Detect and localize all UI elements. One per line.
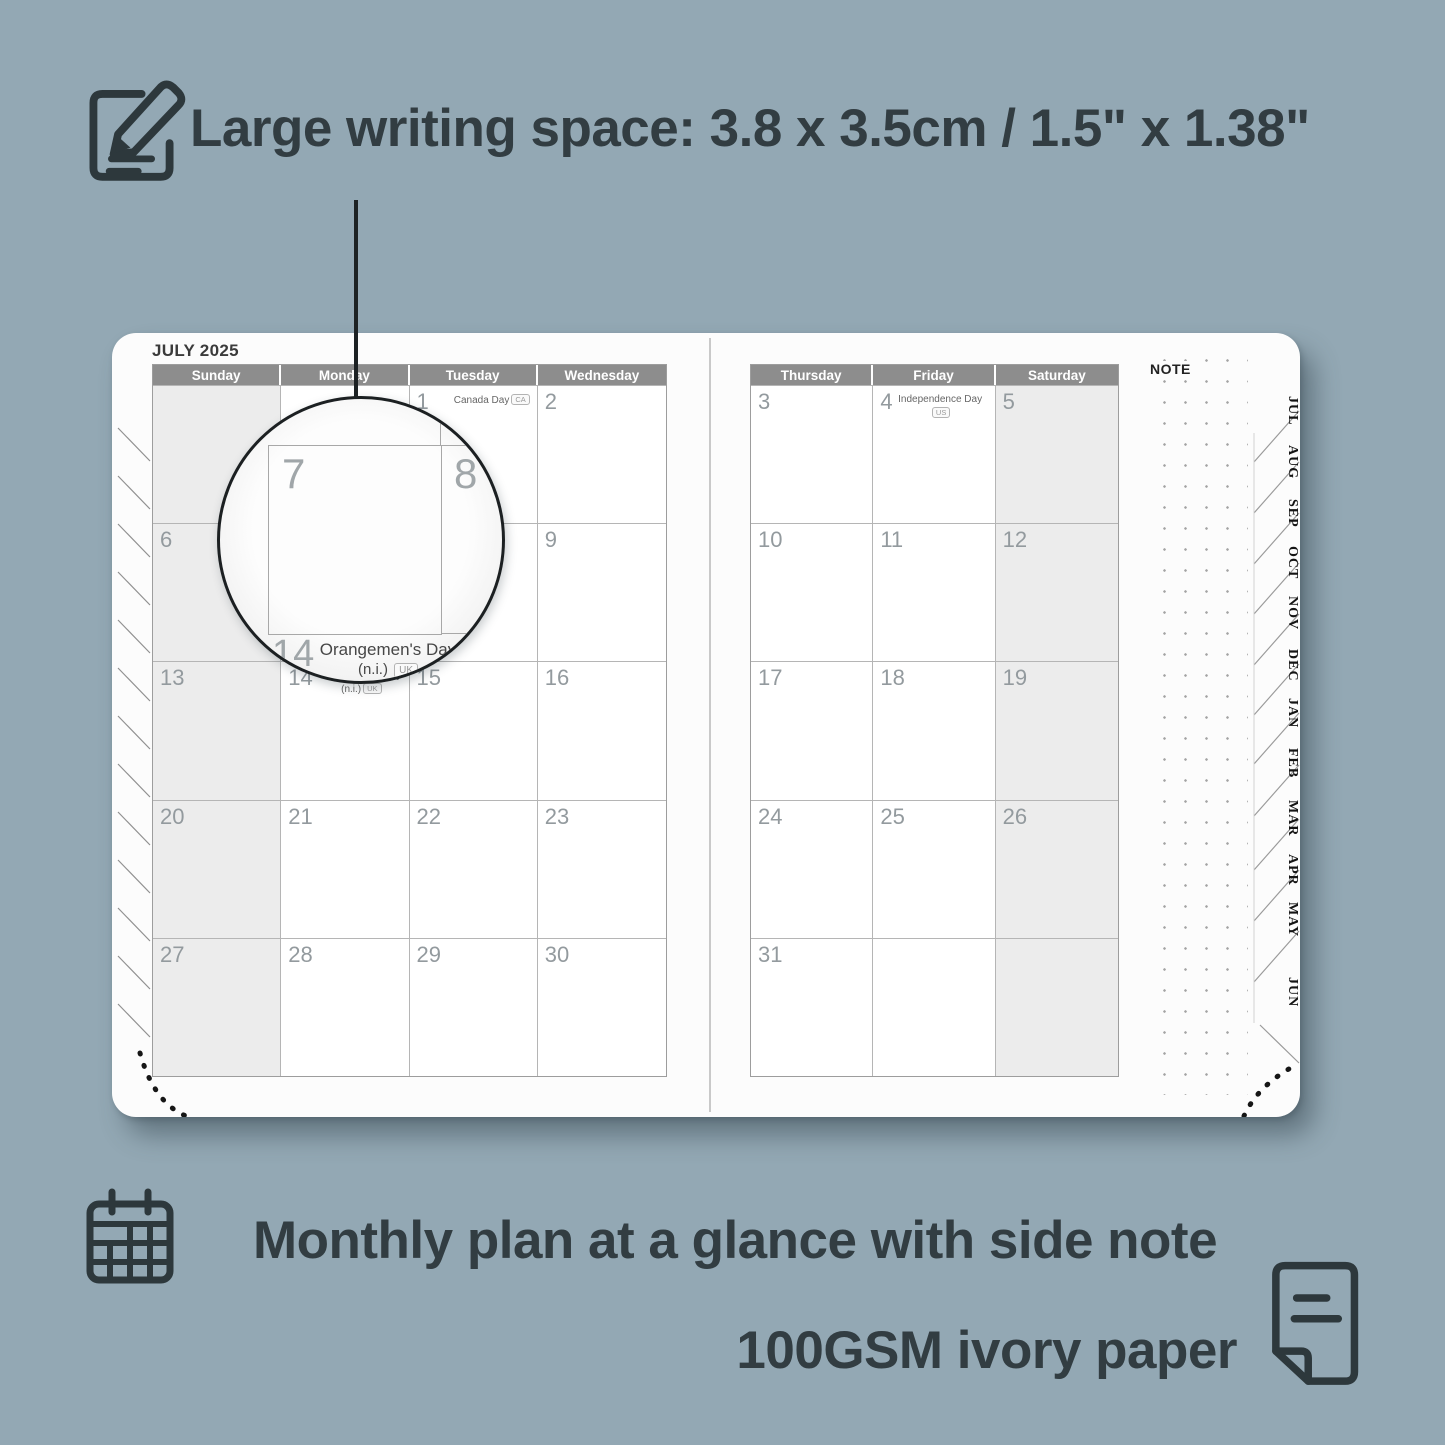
day-cell-holiday: 4 Independence DayUS	[873, 385, 995, 523]
day-cell: 21	[281, 800, 409, 938]
day-cell: 24	[751, 800, 873, 938]
planner-spread: JULY 2025 Sunday Monday Tuesday Wednesda…	[112, 333, 1300, 1117]
day-cell: 28	[281, 938, 409, 1076]
note-edit-icon	[80, 76, 192, 188]
weekday-header: Monday	[281, 365, 409, 385]
day-cell: 22	[410, 800, 538, 938]
weekday-header: Tuesday	[410, 365, 538, 385]
month-tab-may: MAY	[1266, 890, 1300, 950]
calendar-grid-right: Thursday Friday Saturday 3 4 Independenc…	[750, 364, 1119, 1077]
day-cell: 30	[538, 938, 666, 1076]
month-tab-jun: JUN	[1266, 962, 1300, 1022]
day-cell: 9	[538, 523, 666, 661]
day-cell: 2	[538, 385, 666, 523]
day-cell: 19	[996, 661, 1118, 799]
month-tab-feb: FEB	[1266, 733, 1300, 793]
holiday-label: Canada DayCA	[454, 391, 530, 408]
day-cell: 25	[873, 800, 995, 938]
day-cell: 5	[996, 385, 1118, 523]
heading-large-writing-space: Large writing space: 3.8 x 3.5cm / 1.5" …	[190, 98, 1310, 159]
magnified-day-7: 7	[282, 453, 305, 495]
caption-paper: 100GSM ivory paper	[736, 1320, 1237, 1381]
weekday-header: Friday	[873, 365, 995, 385]
weekday-header: Wednesday	[538, 365, 666, 385]
note-dot-grid	[1148, 359, 1248, 1095]
day-cell: 12	[996, 523, 1118, 661]
weekday-header: Saturday	[996, 365, 1118, 385]
day-cell: 23	[538, 800, 666, 938]
magnified-day-8: 8	[454, 453, 477, 495]
weekday-header: Thursday	[751, 365, 873, 385]
country-badge: CA	[511, 394, 529, 405]
magnified-holiday-label: Orangemen's Day (n.i.) UK	[316, 640, 460, 679]
country-badge: UK	[394, 663, 418, 678]
magnifier-pointer-line	[354, 200, 358, 399]
month-tab-mar: MAR	[1266, 788, 1300, 848]
day-cell	[873, 938, 995, 1076]
magnified-day-14: 14	[272, 635, 314, 673]
caption-monthly-plan: Monthly plan at a glance with side note	[253, 1210, 1217, 1271]
spine-divider	[709, 338, 711, 1112]
weekday-header: Sunday	[153, 365, 281, 385]
day-cell: 17	[751, 661, 873, 799]
day-cell: 15	[410, 661, 538, 799]
country-badge: UK	[363, 683, 381, 694]
note-label: NOTE	[1150, 361, 1194, 377]
calendar-grid-icon	[80, 1186, 180, 1298]
day-cell: 3	[751, 385, 873, 523]
day-cell: 26	[996, 800, 1118, 938]
paper-sheet-icon	[1262, 1258, 1366, 1398]
day-cell: 10	[751, 523, 873, 661]
day-cell: 27	[153, 938, 281, 1076]
day-cell: 11	[873, 523, 995, 661]
day-cell: 16	[538, 661, 666, 799]
day-cell	[996, 938, 1118, 1076]
day-cell: 31	[751, 938, 873, 1076]
magnifier-lens: 7 8 14 Orangemen's Day (n.i.) UK	[217, 396, 505, 684]
month-tab-nov: NOV	[1266, 583, 1300, 643]
day-cell: 13	[153, 661, 281, 799]
day-cell: 29	[410, 938, 538, 1076]
day-cell: 20	[153, 800, 281, 938]
month-title: JULY 2025	[152, 341, 239, 361]
holiday-label: Independence DayUS	[893, 391, 988, 420]
day-cell: 18	[873, 661, 995, 799]
country-badge: US	[932, 407, 950, 418]
